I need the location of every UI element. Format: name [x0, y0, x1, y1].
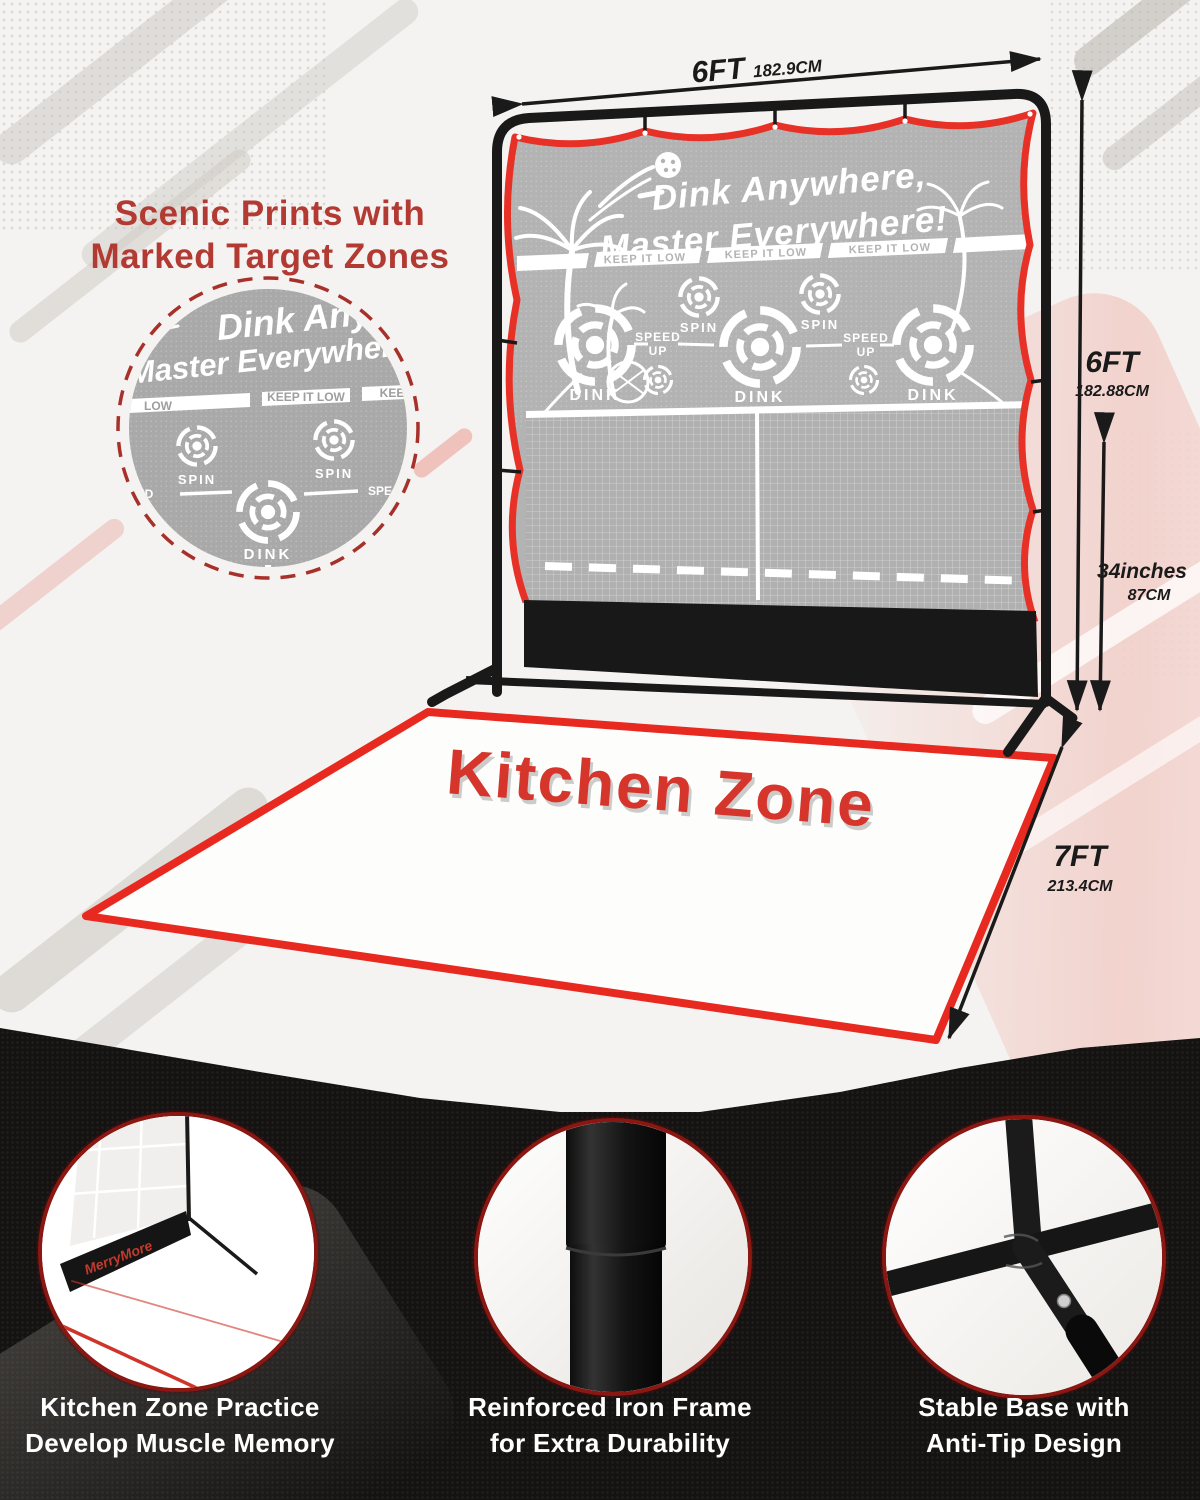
magnifier-band-left: LOW — [144, 399, 173, 413]
feature-circle-kitchen-zone: MerryMore — [38, 1112, 318, 1392]
speed-up-label-1a: SPEED — [635, 330, 681, 344]
feature-circle-iron-frame — [474, 1118, 752, 1396]
height-dimension: 6FT 182.88CM — [1075, 100, 1149, 710]
speed-up-label-2a: SPEED — [843, 331, 889, 345]
spin-label-1: SPIN — [680, 320, 718, 335]
kitchen-mat-closeup: MerryMore — [42, 1116, 314, 1388]
magnifier-band-right: KEE — [380, 386, 405, 400]
speed-up-label-2b: UP — [857, 345, 876, 359]
net-court-graphic — [526, 401, 1035, 622]
product-infographic: Scenic Prints with Marked Target Zones — [0, 0, 1200, 1500]
magnifier-dink-label: DINK — [244, 546, 293, 563]
right-foot-rear — [1046, 698, 1073, 718]
magnifier-content: Dink Any Master Everywher LOW KEEP IT LO… — [127, 289, 407, 578]
height-cm-label: 182.88CM — [1075, 383, 1149, 400]
magnifier-callout: Dink Any Master Everywher LOW KEEP IT LO… — [118, 278, 418, 578]
speed-up-label-1b: UP — [649, 344, 668, 358]
feature-caption-1-line1: Kitchen Zone Practice — [0, 1390, 370, 1426]
spin-label-2: SPIN — [801, 317, 839, 332]
dink-label-3: DINK — [907, 387, 958, 404]
left-foot — [432, 668, 497, 702]
dink-label-2: DINK — [734, 389, 785, 406]
magnifier-frag-right: SPE — [368, 484, 392, 498]
height-ft-label: 6FT — [1085, 346, 1141, 379]
dink-label-1: DINK — [569, 387, 620, 404]
pole-closeup — [478, 1122, 748, 1392]
net-height-dimension: 34inches 87CM — [1097, 442, 1187, 710]
magnifier-spin-label-1: SPIN — [178, 472, 216, 487]
magnifier-spin-label-2: SPIN — [315, 466, 353, 481]
feature-caption-1-line2: Develop Muscle Memory — [0, 1426, 370, 1462]
magnifier-band-center: KEEP IT LOW — [267, 390, 345, 404]
net-height-cm-label: 87CM — [1128, 587, 1171, 604]
feature-caption-3-line2: Anti-Tip Design — [834, 1426, 1200, 1462]
width-ft-label: 6FT — [690, 52, 749, 90]
feature-caption-2: Reinforced Iron Frame for Extra Durabili… — [420, 1390, 800, 1462]
feature-caption-2-line2: for Extra Durability — [420, 1426, 800, 1462]
kitchen-zone-floor: Kitchen Zone Kitchen Zone — [86, 712, 1054, 1040]
feature-circle-stable-base — [882, 1115, 1166, 1399]
feature-caption-3: Stable Base with Anti-Tip Design — [834, 1390, 1200, 1462]
depth-ft-label: 7FT — [1053, 840, 1109, 873]
depth-cm-label: 213.4CM — [1047, 878, 1114, 895]
rebounder: Dink Anywhere, Master Everywhere! — [432, 94, 1073, 752]
feature-caption-1: Kitchen Zone Practice Develop Muscle Mem… — [0, 1390, 370, 1462]
base-joint-closeup — [886, 1119, 1162, 1395]
net-height-in-label: 34inches — [1097, 560, 1187, 583]
feature-caption-3-line1: Stable Base with — [834, 1390, 1200, 1426]
magnifier-frag-left: ED — [137, 487, 154, 501]
feature-caption-2-line1: Reinforced Iron Frame — [420, 1390, 800, 1426]
